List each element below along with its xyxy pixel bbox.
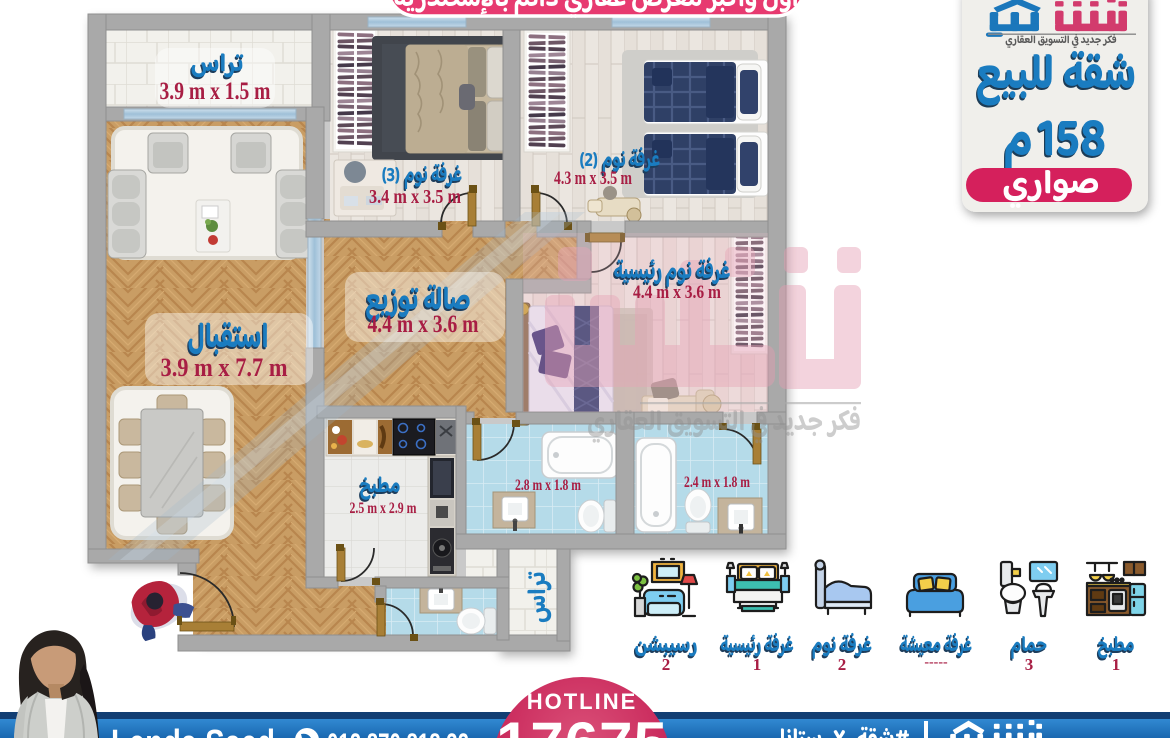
svg-text:3.4 m x 3.5 m: 3.4 m x 3.5 m [369, 186, 461, 208]
svg-text:1: 1 [753, 655, 762, 674]
svg-text:Lenda Saed: Lenda Saed [111, 723, 275, 738]
svg-text:4.3 m x 3.5 m: 4.3 m x 3.5 m [554, 168, 632, 189]
svg-text:3.9 m x 7.7 m: 3.9 m x 7.7 m [161, 353, 288, 382]
svg-text:2.4 m x 1.8 m: 2.4 m x 1.8 m [684, 474, 750, 491]
svg-text:3: 3 [1025, 655, 1034, 674]
svg-text:2: 2 [662, 655, 671, 674]
svg-text:17675: 17675 [496, 710, 668, 738]
svg-text:-----: ----- [924, 655, 948, 670]
svg-text:2.5 m x 2.9 m: 2.5 m x 2.9 m [350, 500, 417, 517]
svg-text:3.9 m x 1.5 m: 3.9 m x 1.5 m [160, 78, 271, 105]
svg-text:1: 1 [1112, 655, 1121, 674]
svg-text:2.8 m x 1.8 m: 2.8 m x 1.8 m [515, 477, 581, 494]
svg-text:4.4 m x 3.6 m: 4.4 m x 3.6 m [368, 311, 479, 338]
svg-text:2: 2 [838, 655, 847, 674]
svg-text:4.4 m x 3.6 m: 4.4 m x 3.6 m [633, 282, 721, 303]
svg-text:012 870 818 32: 012 870 818 32 [327, 728, 469, 738]
